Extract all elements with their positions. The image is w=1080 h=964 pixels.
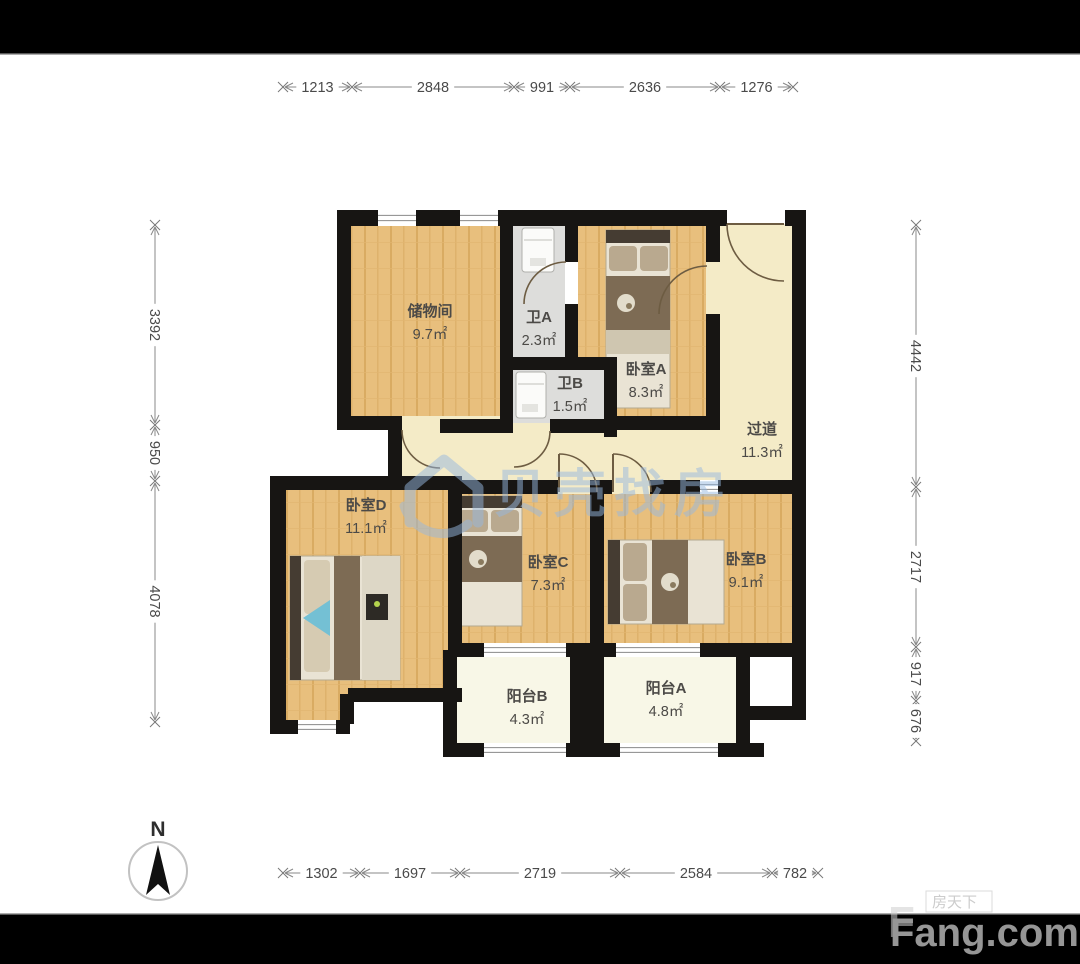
wall xyxy=(286,720,298,734)
room-name-label: 卧室A xyxy=(626,360,667,378)
room-floor xyxy=(286,690,348,722)
window xyxy=(484,743,566,757)
room-area-label: 1.5㎡ xyxy=(553,398,588,415)
wall xyxy=(590,743,620,757)
window xyxy=(298,720,336,734)
dimension-label: 676 xyxy=(907,709,923,733)
fangtianxia-watermark-text: 房天下 xyxy=(932,894,977,911)
room-name-label: 卧室C xyxy=(528,553,569,571)
furniture xyxy=(640,246,668,271)
furniture xyxy=(606,330,670,354)
center-watermark-text: 贝壳找房 xyxy=(494,466,734,524)
wall xyxy=(700,643,806,657)
dimension-label: 1213 xyxy=(301,80,333,96)
dimension-label: 917 xyxy=(907,662,923,686)
compass: N xyxy=(129,818,187,900)
dimension-label: 950 xyxy=(146,441,162,465)
furniture xyxy=(290,556,301,680)
room-name-label: 储物间 xyxy=(407,302,452,320)
wall xyxy=(565,304,578,364)
floorplan-page: 贝壳找房 储物间9.7㎡卫A2.3㎡卧室A8.3㎡卫B1.5㎡过道11.3㎡卧室… xyxy=(0,0,1080,964)
corner-watermark: F 房天下 Fang.com xyxy=(888,891,1079,955)
room-area-label: 7.3㎡ xyxy=(531,577,566,594)
dimension-label: 2636 xyxy=(629,80,661,96)
furniture xyxy=(334,556,360,680)
furniture xyxy=(478,559,484,565)
room-area-label: 8.3㎡ xyxy=(629,384,664,401)
room-name-label: 卫A xyxy=(526,309,552,326)
room-name-label: 卧室B xyxy=(726,550,767,568)
room-area-label: 11.3㎡ xyxy=(741,444,783,461)
dimension-label: 1697 xyxy=(394,866,426,882)
wall xyxy=(443,743,484,757)
wall xyxy=(448,478,462,657)
fang-com-watermark-text: Fang.com xyxy=(890,911,1079,955)
dimension-label: 991 xyxy=(530,80,554,96)
wall xyxy=(337,210,351,430)
dimension-label: 4442 xyxy=(907,340,923,372)
dimension-label: 1276 xyxy=(740,80,772,96)
wall xyxy=(513,357,617,370)
furniture xyxy=(522,404,538,412)
wall xyxy=(448,643,484,657)
room-name-label: 卫B xyxy=(557,375,583,392)
wall xyxy=(270,476,286,734)
room-name-label: 阳台A xyxy=(646,679,687,697)
dimension-label: 782 xyxy=(783,866,807,882)
room-area-label: 2.3㎡ xyxy=(522,332,557,349)
window xyxy=(378,210,416,226)
furniture xyxy=(530,258,546,266)
compass-north-label: N xyxy=(150,818,165,841)
wall xyxy=(604,416,720,430)
dimension-label: 3392 xyxy=(146,309,162,341)
room-name-label: 阳台B xyxy=(507,687,548,705)
furniture xyxy=(661,573,679,591)
wall xyxy=(443,650,457,757)
room-floor xyxy=(351,224,500,416)
room-area-label: 4.8㎡ xyxy=(649,703,684,720)
compass-arrow-icon xyxy=(146,845,170,895)
furniture xyxy=(456,536,522,582)
room-area-label: 4.3㎡ xyxy=(510,711,545,728)
room-area-label: 11.1㎡ xyxy=(345,520,387,537)
furniture xyxy=(374,601,380,607)
window xyxy=(616,643,700,657)
wall xyxy=(270,476,462,490)
furniture xyxy=(469,550,487,568)
top-letterbox-bar xyxy=(0,0,1080,53)
wall xyxy=(736,650,750,757)
wall xyxy=(498,210,727,226)
wall xyxy=(570,650,604,757)
room-name-label: 卧室D xyxy=(346,496,387,514)
room-floor xyxy=(604,655,736,743)
wall xyxy=(416,210,460,226)
room-area-label: 9.1㎡ xyxy=(729,574,764,591)
floorplan-canvas: 贝壳找房 储物间9.7㎡卫A2.3㎡卧室A8.3㎡卫B1.5㎡过道11.3㎡卧室… xyxy=(0,0,1080,964)
top-bar-divider xyxy=(0,53,1080,55)
dimension-label: 2719 xyxy=(524,866,556,882)
wall xyxy=(566,643,604,657)
wall xyxy=(550,419,604,433)
dimension-label: 2584 xyxy=(680,866,712,882)
wall xyxy=(500,210,513,430)
furniture xyxy=(670,582,676,588)
room-name-label: 过道 xyxy=(747,420,777,438)
room-area-label: 9.7㎡ xyxy=(413,326,448,343)
furniture xyxy=(617,294,635,312)
window xyxy=(460,210,498,226)
dimension-label: 2848 xyxy=(417,80,449,96)
furniture xyxy=(626,303,632,309)
furniture xyxy=(623,543,647,581)
wall xyxy=(706,314,720,430)
window xyxy=(620,743,718,757)
dimension-label: 1302 xyxy=(305,866,337,882)
furniture xyxy=(623,584,647,621)
dimension-label: 4078 xyxy=(146,585,162,617)
furniture xyxy=(608,540,620,624)
wall xyxy=(706,210,720,262)
wall xyxy=(565,210,578,262)
furniture xyxy=(606,230,670,243)
furniture xyxy=(609,246,637,271)
dimension-label: 2717 xyxy=(907,551,923,583)
window xyxy=(484,643,566,657)
